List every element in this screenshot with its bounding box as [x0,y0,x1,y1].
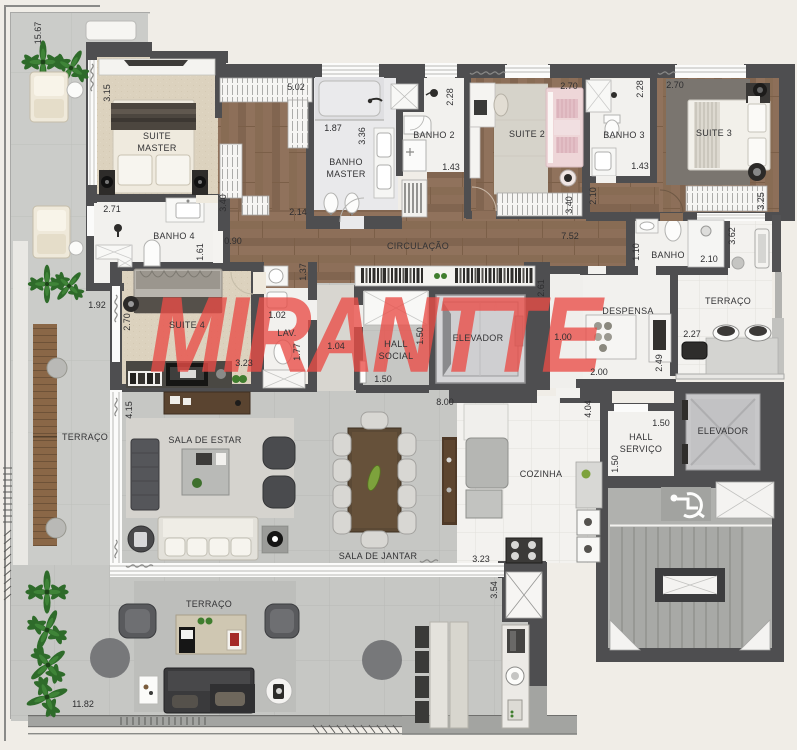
svg-text:ELEVADOR: ELEVADOR [453,333,504,343]
svg-text:BANHO: BANHO [651,250,685,260]
svg-text:LAV.: LAV. [277,328,296,338]
svg-text:HALL: HALL [629,432,653,442]
svg-text:3.25: 3.25 [756,192,766,210]
svg-text:1.37: 1.37 [298,263,308,281]
svg-text:3.23: 3.23 [472,554,490,564]
svg-text:BANHO 2: BANHO 2 [413,130,455,140]
svg-text:1.04: 1.04 [327,341,345,351]
svg-text:2.10: 2.10 [700,254,718,264]
svg-text:MASTER: MASTER [326,169,366,179]
svg-text:2.70: 2.70 [122,313,132,331]
svg-text:4.15: 4.15 [124,401,134,419]
svg-text:SUITE 4: SUITE 4 [169,320,205,330]
svg-text:TERRAÇO: TERRAÇO [705,296,751,306]
svg-text:SUITE: SUITE [143,131,171,141]
svg-text:2.70: 2.70 [560,81,578,91]
svg-text:0.90: 0.90 [224,236,242,246]
svg-text:7.52: 7.52 [561,231,579,241]
svg-text:1.50: 1.50 [652,418,670,428]
svg-text:SUITE 2: SUITE 2 [509,129,545,139]
svg-text:3.62: 3.62 [727,227,737,245]
svg-text:1.50: 1.50 [415,327,425,345]
svg-text:SALA DE ESTAR: SALA DE ESTAR [168,435,241,445]
svg-text:HALL: HALL [384,339,408,349]
svg-text:1.50: 1.50 [610,455,620,473]
svg-text:1.87: 1.87 [324,123,342,133]
svg-text:11.82: 11.82 [72,699,94,709]
svg-text:3.40: 3.40 [218,194,228,212]
svg-text:BANHO: BANHO [329,157,363,167]
svg-text:2.00: 2.00 [590,367,608,377]
svg-text:15.67: 15.67 [33,22,43,45]
svg-text:8.00: 8.00 [436,397,454,407]
svg-text:DESPENSA: DESPENSA [602,306,653,316]
svg-text:1.61: 1.61 [195,243,205,261]
svg-text:SUITE 3: SUITE 3 [696,128,732,138]
svg-text:1.43: 1.43 [442,162,460,172]
svg-text:1.50: 1.50 [374,374,392,384]
svg-text:TERRAÇO: TERRAÇO [62,432,108,442]
svg-text:2.28: 2.28 [635,80,645,98]
svg-text:2.28: 2.28 [445,88,455,106]
svg-text:BANHO 3: BANHO 3 [603,130,645,140]
svg-text:1.00: 1.00 [554,332,572,342]
svg-text:1.92: 1.92 [88,300,106,310]
svg-text:MASTER: MASTER [137,143,177,153]
svg-text:2.10: 2.10 [588,187,598,205]
svg-text:ELEVADOR: ELEVADOR [698,426,749,436]
svg-text:3.54: 3.54 [489,581,499,599]
svg-text:2.14: 2.14 [289,207,307,217]
svg-text:1.02: 1.02 [268,310,286,320]
svg-text:4.04: 4.04 [583,400,593,418]
svg-text:3.36: 3.36 [357,127,367,145]
svg-text:SERVIÇO: SERVIÇO [620,444,662,454]
svg-text:2.70: 2.70 [666,80,684,90]
svg-text:1.43: 1.43 [631,161,649,171]
svg-text:TERRAÇO: TERRAÇO [186,599,232,609]
svg-text:2.61: 2.61 [536,279,546,297]
svg-text:2.27: 2.27 [683,329,701,339]
svg-text:2.49: 2.49 [654,354,664,372]
svg-text:CIRCULAÇÃO: CIRCULAÇÃO [387,241,449,251]
svg-text:5.02: 5.02 [287,82,305,92]
svg-text:COZINHA: COZINHA [520,469,563,479]
svg-text:3.23: 3.23 [235,358,253,368]
svg-text:3.40: 3.40 [564,196,574,214]
svg-text:3.15: 3.15 [102,84,112,102]
svg-text:1.10: 1.10 [631,243,641,261]
svg-text:1.77: 1.77 [292,343,302,361]
svg-text:BANHO 4: BANHO 4 [153,231,195,241]
svg-text:2.71: 2.71 [103,204,121,214]
svg-text:SALA DE JANTAR: SALA DE JANTAR [339,551,418,561]
svg-text:SOCIAL: SOCIAL [379,351,414,361]
